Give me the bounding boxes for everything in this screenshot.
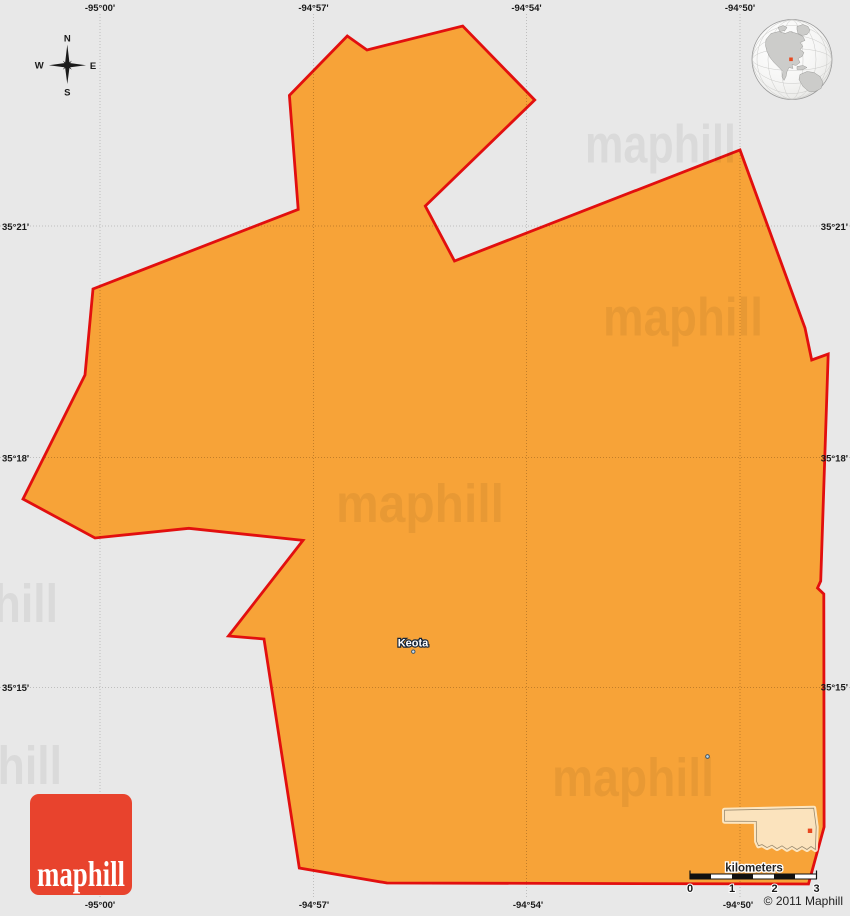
svg-text:35°21': 35°21' [2, 222, 29, 233]
svg-text:35°15': 35°15' [2, 683, 29, 694]
svg-text:35°21': 35°21' [821, 222, 848, 233]
svg-text:maphill: maphill [37, 854, 125, 894]
svg-text:-95°00': -95°00' [85, 900, 115, 911]
svg-text:maphill: maphill [336, 474, 504, 534]
svg-text:E: E [90, 61, 96, 72]
svg-text:-94°50': -94°50' [723, 900, 753, 911]
svg-text:S: S [64, 88, 70, 99]
svg-text:maphill: maphill [585, 115, 736, 175]
svg-text:35°18': 35°18' [2, 454, 29, 465]
svg-text:0: 0 [687, 883, 693, 895]
svg-text:© 2011 Maphill: © 2011 Maphill [764, 894, 843, 908]
svg-text:Keota: Keota [398, 638, 429, 650]
svg-text:maphill: maphill [0, 574, 58, 634]
svg-text:-94°50': -94°50' [725, 3, 755, 14]
svg-text:-94°57': -94°57' [299, 900, 329, 911]
svg-text:maphill: maphill [603, 288, 763, 348]
svg-text:maphill: maphill [0, 736, 62, 796]
svg-text:N: N [64, 34, 71, 45]
svg-text:maphill: maphill [552, 748, 714, 808]
svg-text:-94°57': -94°57' [298, 3, 328, 14]
svg-text:-95°00': -95°00' [85, 3, 115, 14]
svg-text:kilometers: kilometers [725, 863, 783, 875]
svg-text:35°18': 35°18' [821, 454, 848, 465]
svg-text:-94°54': -94°54' [511, 3, 541, 14]
svg-text:-94°54': -94°54' [513, 900, 543, 911]
svg-text:1: 1 [729, 883, 735, 895]
svg-text:W: W [35, 61, 44, 72]
svg-text:35°15': 35°15' [821, 683, 848, 694]
